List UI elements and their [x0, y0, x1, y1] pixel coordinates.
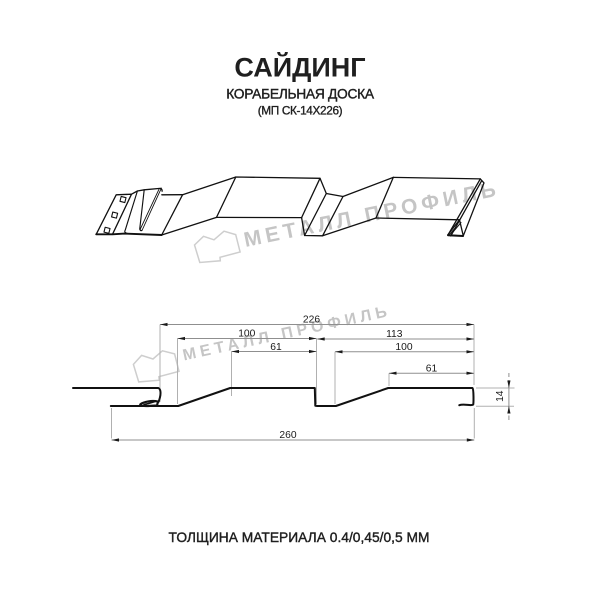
svg-text:61: 61: [270, 342, 282, 353]
svg-text:САЙДИНГ: САЙДИНГ: [234, 52, 365, 83]
svg-text:260: 260: [279, 430, 296, 441]
svg-text:61: 61: [426, 363, 438, 374]
svg-text:ТОЛЩИНА МАТЕРИАЛА 0.4/0,45/0,5: ТОЛЩИНА МАТЕРИАЛА 0.4/0,45/0,5 ММ: [169, 530, 430, 545]
svg-text:(МП СК-14Х226): (МП СК-14Х226): [258, 103, 343, 117]
svg-text:100: 100: [395, 342, 412, 353]
svg-text:КОРАБЕЛЬНАЯ ДОСКА: КОРАБЕЛЬНАЯ ДОСКА: [226, 87, 375, 102]
svg-text:14: 14: [495, 390, 506, 402]
svg-text:МЕТАЛЛ ПРОФИЛЬ: МЕТАЛЛ ПРОФИЛЬ: [181, 303, 392, 365]
svg-text:100: 100: [238, 329, 255, 340]
svg-text:113: 113: [386, 329, 403, 340]
svg-text:226: 226: [303, 314, 320, 325]
